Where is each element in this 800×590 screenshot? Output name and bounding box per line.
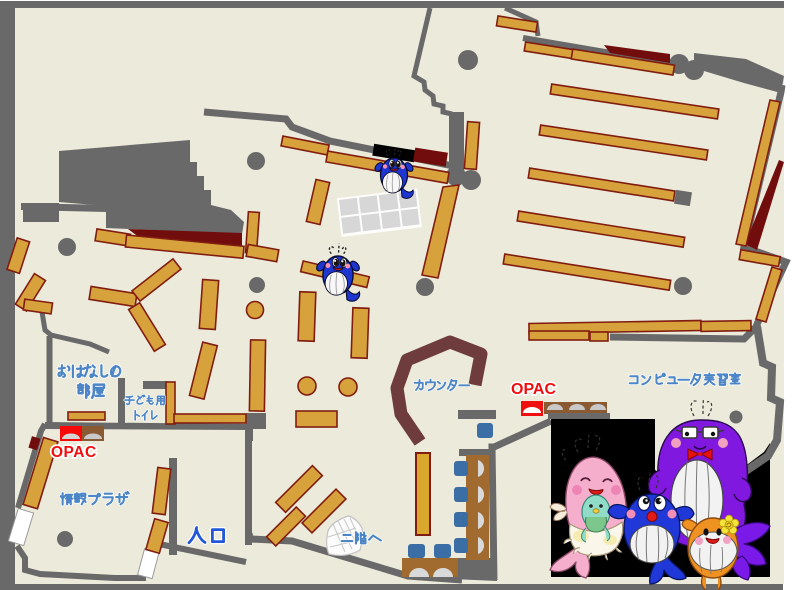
svg-text:OPAC: OPAC [51, 444, 97, 461]
svg-text:OPAC: OPAC [511, 381, 556, 398]
